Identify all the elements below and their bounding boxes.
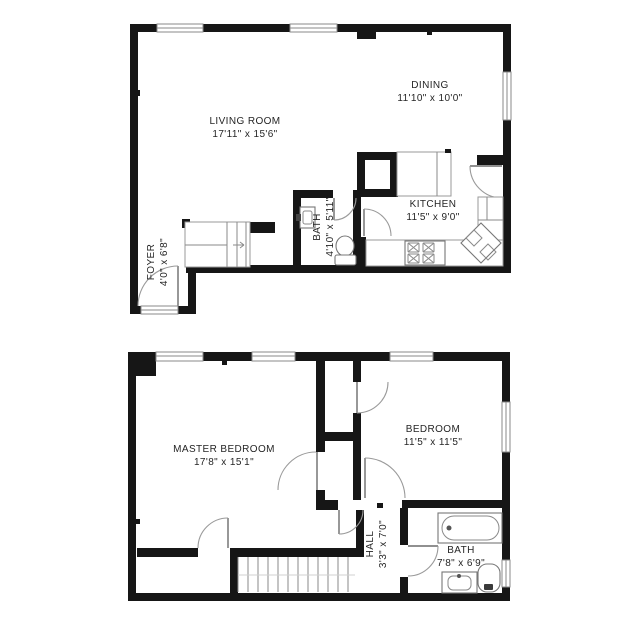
room-label-foyer: FOYER 4'0" x 6'8" <box>145 238 171 286</box>
room-label-master-bedroom: MASTER BEDROOM 17'8" x 15'1" <box>173 443 275 469</box>
floor-plan-page: LIVING ROOM 17'11" x 15'6" DINING 11'10"… <box>0 0 640 640</box>
lower-stairs-icon <box>238 557 355 592</box>
room-name: DINING <box>397 79 462 92</box>
room-dims: 17'8" x 15'1" <box>173 456 275 469</box>
bedroom-closet-door <box>357 382 388 413</box>
stove-icon <box>405 241 445 265</box>
room-name: BATH <box>311 197 324 256</box>
room-dims: 3'3" x 7'0" <box>377 520 390 568</box>
room-name: MASTER BEDROOM <box>173 443 275 456</box>
room-label-bath-upper: BATH 4'10" x 5'11" <box>311 197 337 256</box>
room-label-dining: DINING 11'10" x 10'0" <box>397 79 462 105</box>
master-closet-door <box>278 452 317 490</box>
vanity-sink-icon <box>442 572 477 593</box>
bath-door-lower <box>408 546 438 576</box>
room-dims: 11'5" x 11'5" <box>404 436 463 449</box>
room-name: FOYER <box>145 238 158 286</box>
refrigerator-counter-icon <box>397 149 451 196</box>
under-stair-closet-door <box>198 518 228 548</box>
bedroom-door <box>365 458 405 498</box>
room-dims: 11'10" x 10'0" <box>397 92 462 105</box>
room-dims: 4'0" x 6'8" <box>158 238 171 286</box>
room-label-kitchen: KITCHEN 11'5" x 9'0" <box>406 198 459 224</box>
upper-kitchen-closet <box>357 152 398 197</box>
upper-floor-windows <box>157 24 511 120</box>
dining-kitchen-door <box>470 166 502 198</box>
upper-stairs-icon <box>185 222 250 267</box>
room-label-bedroom: BEDROOM 11'5" x 11'5" <box>404 423 463 449</box>
kitchen-door <box>364 209 391 236</box>
room-dims: 4'10" x 5'11" <box>324 197 337 256</box>
room-label-bath-lower: BATH 7'8" x 6'9" <box>437 544 485 570</box>
room-name: KITCHEN <box>406 198 459 211</box>
room-dims: 7'8" x 6'9" <box>437 557 485 570</box>
room-dims: 17'11" x 15'6" <box>209 128 280 141</box>
upper-floor-walls <box>130 24 511 314</box>
room-name: BEDROOM <box>404 423 463 436</box>
toilet-icon-upper <box>335 236 356 265</box>
room-label-living-room: LIVING ROOM 17'11" x 15'6" <box>209 115 280 141</box>
room-dims: 11'5" x 9'0" <box>406 211 459 224</box>
floor-plan-drawing <box>0 0 640 640</box>
room-name: HALL <box>364 520 377 568</box>
room-label-hall: HALL 3'3" x 7'0" <box>364 520 390 568</box>
bath-door-upper <box>334 198 356 220</box>
room-name: BATH <box>437 544 485 557</box>
room-name: LIVING ROOM <box>209 115 280 128</box>
bathtub-icon <box>438 513 502 543</box>
